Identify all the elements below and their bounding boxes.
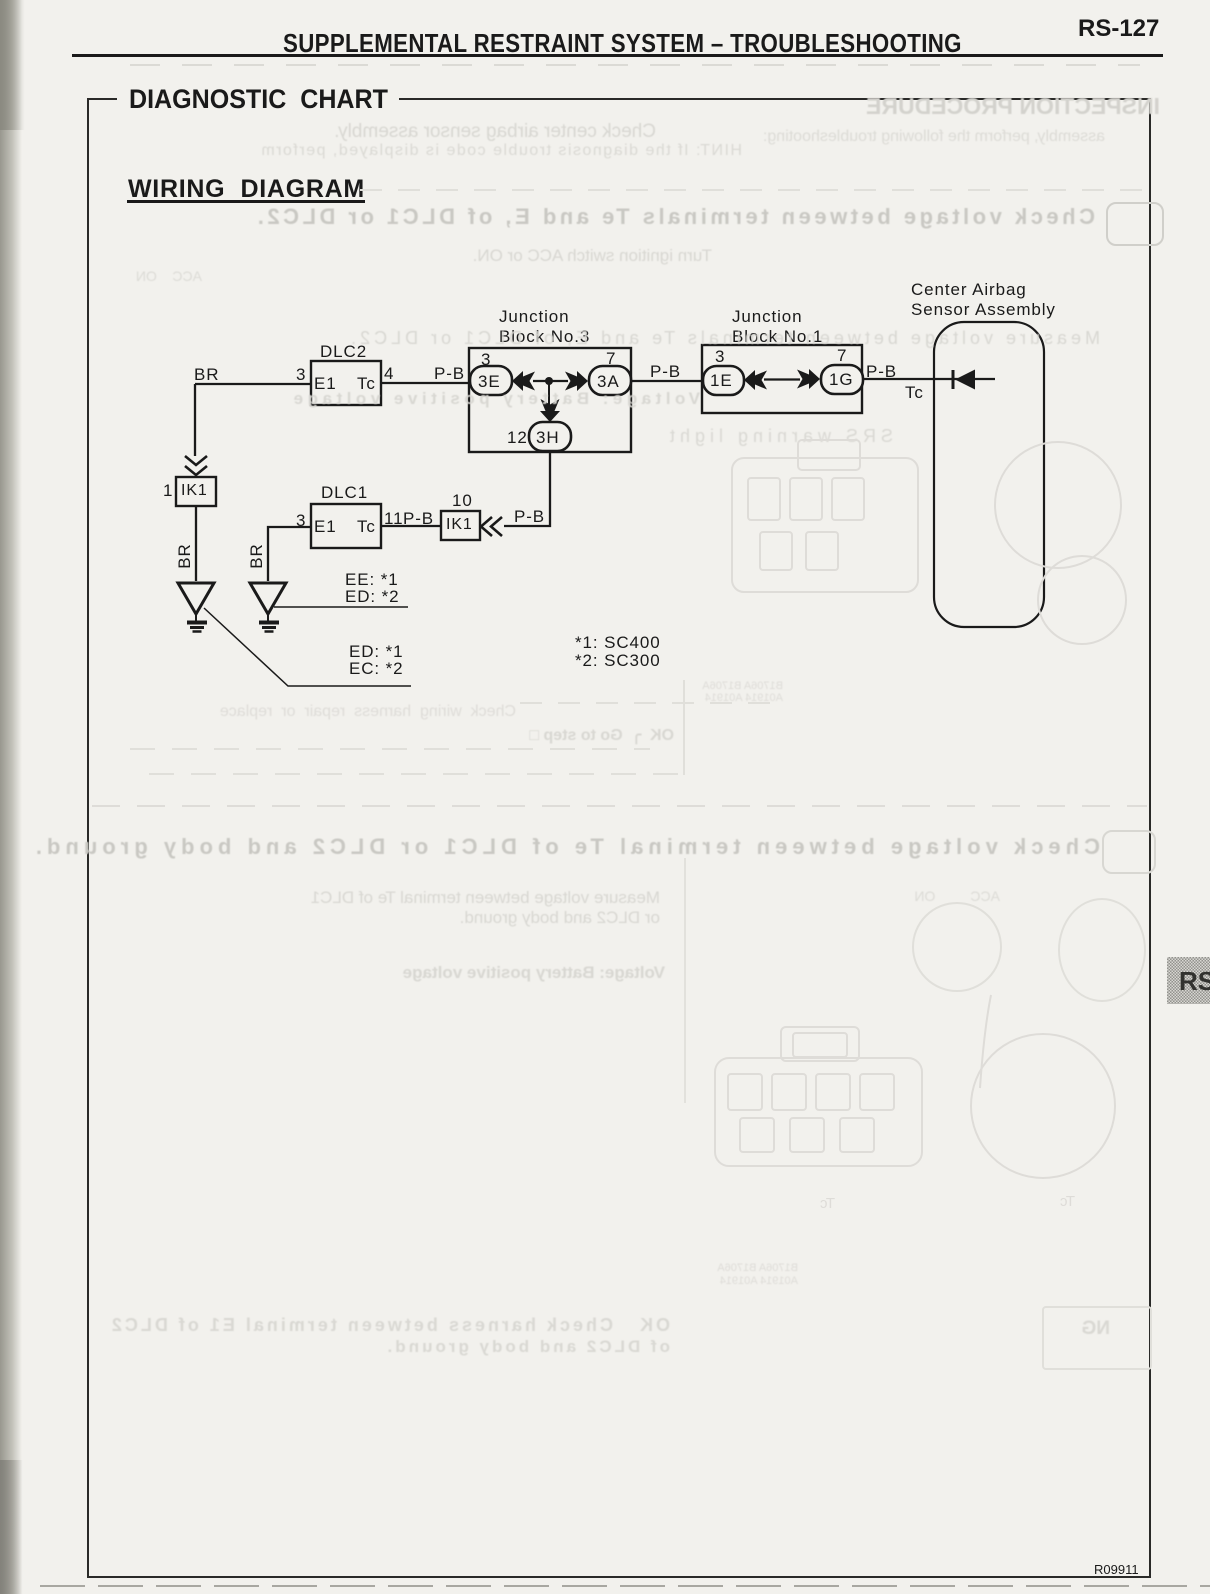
- svg-text:Tc: Tc: [1060, 1193, 1076, 1210]
- svg-text:Tc: Tc: [820, 1195, 836, 1212]
